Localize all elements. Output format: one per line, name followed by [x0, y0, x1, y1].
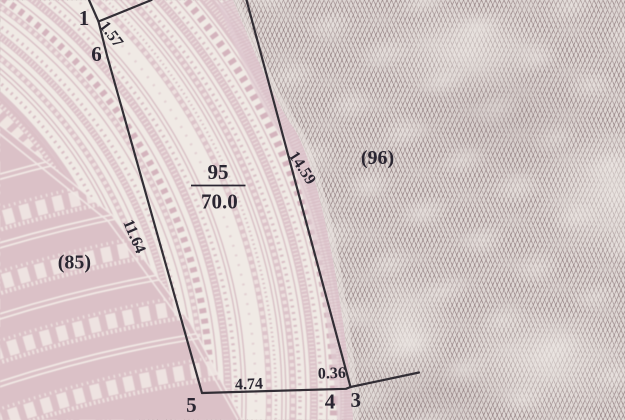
svg-text:5: 5	[186, 393, 197, 417]
svg-text:70.0: 70.0	[201, 190, 238, 214]
svg-text:95: 95	[208, 160, 229, 184]
svg-text:(96): (96)	[361, 147, 394, 169]
svg-text:4: 4	[325, 390, 336, 414]
svg-text:4.74: 4.74	[235, 376, 264, 394]
svg-text:3: 3	[350, 388, 361, 412]
svg-text:6: 6	[91, 42, 102, 66]
svg-text:0.36: 0.36	[318, 365, 347, 383]
svg-text:(85): (85)	[58, 251, 91, 273]
svg-text:1: 1	[79, 6, 90, 30]
